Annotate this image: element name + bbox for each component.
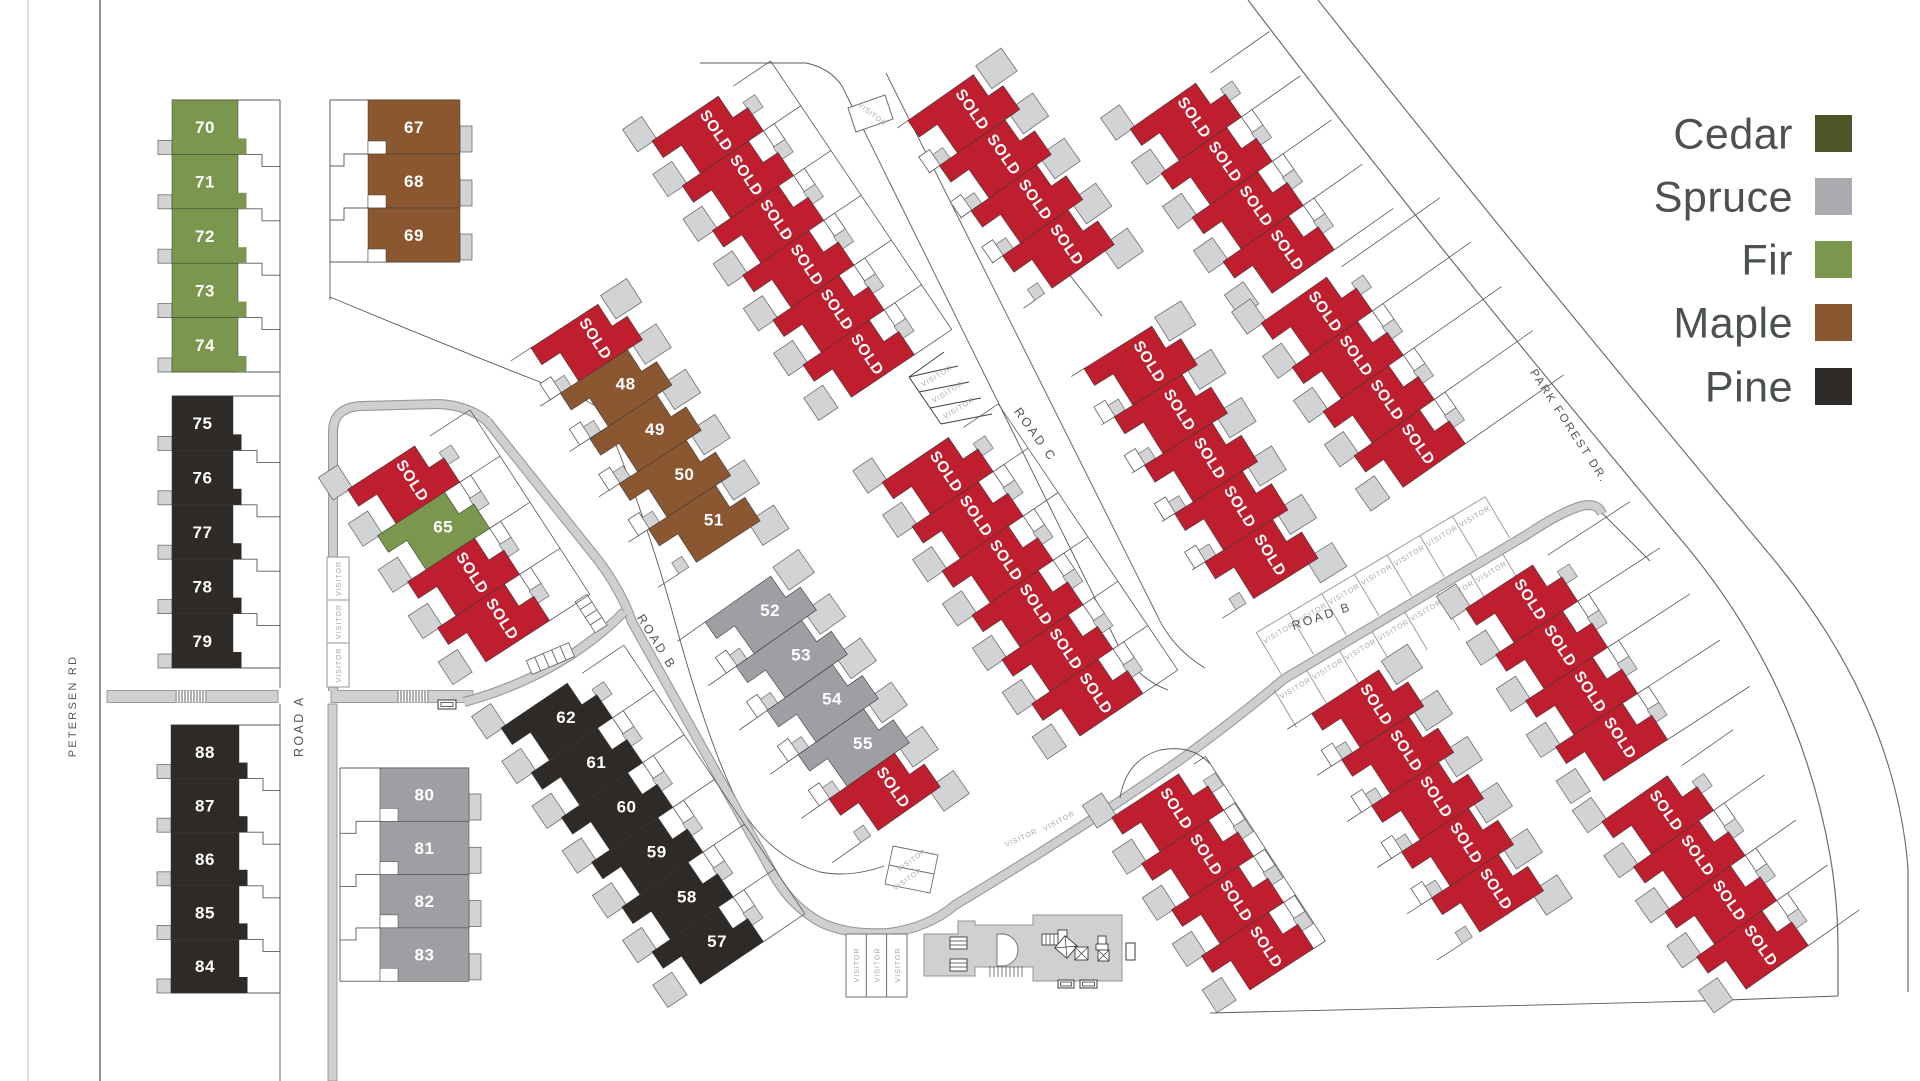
- svg-text:55: 55: [853, 734, 873, 753]
- svg-text:61: 61: [586, 753, 606, 772]
- svg-text:71: 71: [195, 173, 215, 192]
- svg-text:50: 50: [674, 465, 694, 484]
- svg-text:VISITOR: VISITOR: [334, 648, 343, 683]
- svg-text:VISITOR: VISITOR: [852, 948, 861, 983]
- svg-text:70: 70: [195, 118, 215, 137]
- svg-text:88: 88: [195, 743, 215, 762]
- svg-text:86: 86: [195, 850, 215, 869]
- svg-text:59: 59: [647, 843, 667, 862]
- svg-text:74: 74: [195, 336, 215, 355]
- svg-text:62: 62: [556, 708, 576, 727]
- svg-text:53: 53: [791, 645, 811, 664]
- svg-text:VISITOR: VISITOR: [334, 604, 343, 639]
- svg-text:83: 83: [415, 946, 435, 965]
- svg-text:51: 51: [704, 510, 724, 529]
- svg-text:69: 69: [404, 226, 424, 245]
- svg-text:Maple: Maple: [1673, 300, 1793, 348]
- svg-text:PETERSEN RD: PETERSEN RD: [67, 655, 79, 757]
- svg-text:87: 87: [195, 796, 215, 815]
- svg-text:49: 49: [645, 420, 665, 439]
- svg-text:76: 76: [193, 469, 213, 488]
- svg-text:68: 68: [404, 172, 424, 191]
- svg-text:65: 65: [433, 517, 453, 536]
- svg-text:81: 81: [415, 839, 435, 858]
- svg-text:Fir: Fir: [1741, 237, 1793, 285]
- svg-text:57: 57: [707, 932, 727, 951]
- svg-text:84: 84: [195, 957, 215, 976]
- svg-text:Spruce: Spruce: [1654, 174, 1793, 222]
- svg-text:73: 73: [195, 281, 215, 300]
- svg-text:Pine: Pine: [1705, 364, 1793, 412]
- svg-text:75: 75: [193, 414, 213, 433]
- svg-text:54: 54: [822, 690, 842, 709]
- svg-text:72: 72: [195, 227, 215, 246]
- svg-text:78: 78: [193, 577, 213, 596]
- svg-text:77: 77: [193, 523, 213, 542]
- svg-text:58: 58: [677, 887, 697, 906]
- svg-text:VISITOR: VISITOR: [893, 948, 902, 983]
- svg-text:ROAD A: ROAD A: [292, 695, 306, 757]
- svg-text:Cedar: Cedar: [1673, 111, 1793, 159]
- svg-text:79: 79: [193, 632, 213, 651]
- svg-text:48: 48: [616, 375, 636, 394]
- svg-text:VISITOR: VISITOR: [334, 561, 343, 596]
- svg-text:60: 60: [617, 798, 637, 817]
- svg-text:67: 67: [404, 118, 424, 137]
- svg-text:82: 82: [415, 892, 435, 911]
- svg-text:85: 85: [195, 904, 215, 923]
- svg-text:VISITOR: VISITOR: [873, 948, 882, 983]
- svg-text:80: 80: [415, 786, 435, 805]
- svg-text:52: 52: [760, 601, 780, 620]
